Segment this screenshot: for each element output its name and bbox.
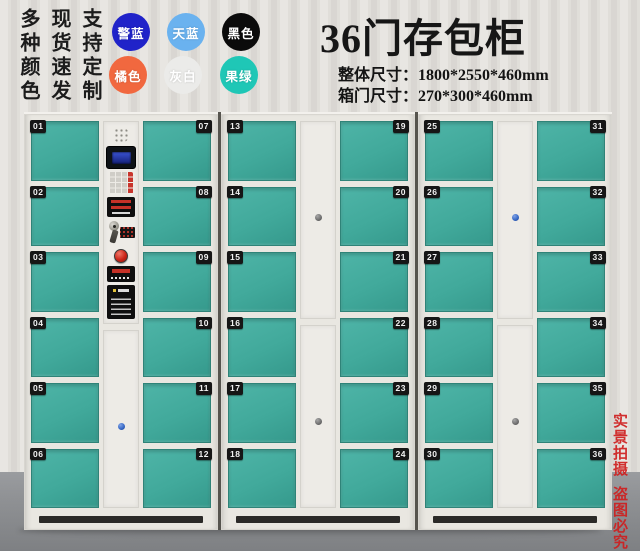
swipe-area-label bbox=[107, 266, 135, 282]
locker-door-19: 19 bbox=[340, 121, 408, 181]
locker-door-28: 28 bbox=[425, 318, 493, 378]
locker-door-12: 12 bbox=[143, 449, 211, 509]
cabinet-2-center-column bbox=[300, 121, 336, 508]
door-number-badge: 03 bbox=[30, 251, 46, 264]
color-swatch-orange: 橘色 bbox=[109, 56, 147, 94]
cabinet-1: 01 02 03 04 05 06 bbox=[24, 112, 218, 530]
key-lock-row bbox=[104, 220, 138, 246]
slogan-in-stock: 现货速发 bbox=[45, 8, 74, 104]
product-image: 多种颜色 现货速发 支持定制 警蓝 天蓝 黑色 橘色 灰白 果绿 36门存包柜 … bbox=[0, 0, 640, 551]
door-number-badge: 34 bbox=[590, 317, 606, 330]
door-number-badge: 28 bbox=[424, 317, 440, 330]
locker-door-06: 06 bbox=[31, 449, 99, 509]
locker-door-02: 02 bbox=[31, 187, 99, 247]
hanging-keys-icon bbox=[109, 229, 118, 243]
center-panel-lower bbox=[103, 330, 139, 508]
lock-icon bbox=[512, 418, 519, 425]
cabinet-3: 25 26 27 28 29 30 31 32 bbox=[418, 112, 612, 530]
cabinet-3-front: 25 26 27 28 29 30 31 32 bbox=[418, 114, 612, 508]
door-number-badge: 32 bbox=[590, 186, 606, 199]
watermark-line: 盗图必究 bbox=[609, 486, 630, 550]
door-number-badge: 23 bbox=[393, 382, 409, 395]
locker-door-33: 33 bbox=[537, 252, 605, 312]
cabinet-2-front: 13 14 15 16 17 18 19 20 bbox=[221, 114, 415, 508]
swatch-label: 橘色 bbox=[114, 66, 141, 85]
color-swatch-sky-blue: 天蓝 bbox=[167, 13, 205, 51]
mini-button-panel bbox=[120, 227, 135, 238]
door-number-badge: 33 bbox=[590, 251, 606, 264]
locker-cabinets: 01 02 03 04 05 06 bbox=[24, 112, 612, 530]
color-swatch-fruit-green: 果绿 bbox=[220, 56, 258, 94]
cabinet-base bbox=[418, 508, 612, 530]
door-number-badge: 14 bbox=[227, 186, 243, 199]
swatch-label: 黑色 bbox=[227, 23, 254, 42]
locker-door-17: 17 bbox=[228, 383, 296, 443]
red-emergency-button bbox=[114, 249, 128, 263]
lock-icon bbox=[315, 214, 322, 221]
door-number-badge: 22 bbox=[393, 317, 409, 330]
door-number-badge: 24 bbox=[393, 448, 409, 461]
locker-door-05: 05 bbox=[31, 383, 99, 443]
door-number-badge: 26 bbox=[424, 186, 440, 199]
door-number-badge: 09 bbox=[196, 251, 212, 264]
locker-door-14: 14 bbox=[228, 187, 296, 247]
center-panel-upper bbox=[300, 121, 336, 319]
slogan-multiple-colors: 多种颜色 bbox=[14, 8, 43, 104]
locker-door-35: 35 bbox=[537, 383, 605, 443]
locker-door-15: 15 bbox=[228, 252, 296, 312]
door-number-badge: 31 bbox=[590, 120, 606, 133]
cabinet-base bbox=[24, 508, 218, 530]
door-number-badge: 05 bbox=[30, 382, 46, 395]
locker-door-09: 09 bbox=[143, 252, 211, 312]
door-number-badge: 08 bbox=[196, 186, 212, 199]
instruction-label bbox=[107, 285, 135, 319]
door-number-badge: 30 bbox=[424, 448, 440, 461]
locker-door-26: 26 bbox=[425, 187, 493, 247]
cabinet-1-front: 01 02 03 04 05 06 bbox=[24, 114, 218, 508]
locker-door-08: 08 bbox=[143, 187, 211, 247]
locker-door-24: 24 bbox=[340, 449, 408, 509]
door-number-badge: 06 bbox=[30, 448, 46, 461]
cabinet-1-center-column bbox=[103, 121, 139, 508]
locker-door-34: 34 bbox=[537, 318, 605, 378]
control-panel bbox=[103, 121, 139, 324]
locker-door-03: 03 bbox=[31, 252, 99, 312]
locker-door-04: 04 bbox=[31, 318, 99, 378]
card-reader-label bbox=[107, 197, 135, 217]
locker-door-21: 21 bbox=[340, 252, 408, 312]
product-title: 36门存包柜 bbox=[320, 6, 570, 64]
center-panel-upper bbox=[497, 121, 533, 319]
locker-door-01: 01 bbox=[31, 121, 99, 181]
door-number-badge: 11 bbox=[196, 382, 212, 395]
anti-theft-watermark: 实景拍摄 盗图必究 bbox=[609, 413, 630, 550]
door-number-badge: 36 bbox=[590, 448, 606, 461]
door-number-badge: 13 bbox=[227, 120, 243, 133]
locker-door-27: 27 bbox=[425, 252, 493, 312]
door-number-badge: 27 bbox=[424, 251, 440, 264]
center-panel-lower bbox=[497, 325, 533, 508]
swatch-label: 灰白 bbox=[169, 66, 196, 85]
door-number-badge: 15 bbox=[227, 251, 243, 264]
door-number-badge: 17 bbox=[227, 382, 243, 395]
center-panel-lower bbox=[300, 325, 336, 508]
cabinet-3-right-doors: 31 32 33 34 35 36 bbox=[537, 121, 605, 508]
locker-door-23: 23 bbox=[340, 383, 408, 443]
locker-door-29: 29 bbox=[425, 383, 493, 443]
locker-door-22: 22 bbox=[340, 318, 408, 378]
locker-door-36: 36 bbox=[537, 449, 605, 509]
lock-icon bbox=[512, 214, 519, 221]
cabinet-1-left-doors: 01 02 03 04 05 06 bbox=[31, 121, 99, 508]
door-number-badge: 10 bbox=[196, 317, 212, 330]
swatch-label: 天蓝 bbox=[172, 23, 199, 42]
door-number-badge: 04 bbox=[30, 317, 46, 330]
door-number-badge: 12 bbox=[196, 448, 212, 461]
door-number-badge: 20 bbox=[393, 186, 409, 199]
locker-door-32: 32 bbox=[537, 187, 605, 247]
locker-door-25: 25 bbox=[425, 121, 493, 181]
door-number-badge: 21 bbox=[393, 251, 409, 264]
door-number-badge: 16 bbox=[227, 317, 243, 330]
keypad bbox=[109, 172, 133, 194]
locker-door-20: 20 bbox=[340, 187, 408, 247]
locker-door-07: 07 bbox=[143, 121, 211, 181]
swatch-label: 警蓝 bbox=[117, 23, 144, 42]
cabinet-2: 13 14 15 16 17 18 19 20 bbox=[221, 112, 415, 530]
locker-door-11: 11 bbox=[143, 383, 211, 443]
locker-door-30: 30 bbox=[425, 449, 493, 509]
door-dimensions: 箱门尺寸：270*300*460mm bbox=[338, 82, 533, 106]
locker-door-16: 16 bbox=[228, 318, 296, 378]
door-number-badge: 02 bbox=[30, 186, 46, 199]
lcd-screen bbox=[112, 152, 131, 164]
watermark-line: 实景拍摄 bbox=[609, 413, 630, 477]
lock-icon bbox=[118, 423, 125, 430]
locker-door-18: 18 bbox=[228, 449, 296, 509]
color-swatch-black: 黑色 bbox=[222, 13, 260, 51]
cabinet-1-right-doors: 07 08 09 10 11 12 bbox=[143, 121, 211, 508]
cabinet-2-right-doors: 19 20 21 22 23 24 bbox=[340, 121, 408, 508]
cabinet-3-left-doors: 25 26 27 28 29 30 bbox=[425, 121, 493, 508]
door-number-badge: 01 bbox=[30, 120, 46, 133]
speaker-grille-icon bbox=[113, 127, 129, 143]
locker-door-13: 13 bbox=[228, 121, 296, 181]
cabinet-3-center-column bbox=[497, 121, 533, 508]
door-number-badge: 35 bbox=[590, 382, 606, 395]
lcd-display bbox=[106, 146, 136, 169]
locker-door-10: 10 bbox=[143, 318, 211, 378]
color-swatch-gray-white: 灰白 bbox=[164, 56, 202, 94]
door-number-badge: 25 bbox=[424, 120, 440, 133]
cabinet-2-left-doors: 13 14 15 16 17 18 bbox=[228, 121, 296, 508]
door-number-badge: 29 bbox=[424, 382, 440, 395]
cabinet-base bbox=[221, 508, 415, 530]
locker-door-31: 31 bbox=[537, 121, 605, 181]
swatch-label: 果绿 bbox=[225, 66, 252, 85]
door-number-badge: 07 bbox=[196, 120, 212, 133]
door-number-badge: 18 bbox=[227, 448, 243, 461]
color-swatch-police-blue: 警蓝 bbox=[112, 13, 150, 51]
lock-icon bbox=[315, 418, 322, 425]
slogan-customizable: 支持定制 bbox=[76, 8, 105, 104]
door-number-badge: 19 bbox=[393, 120, 409, 133]
